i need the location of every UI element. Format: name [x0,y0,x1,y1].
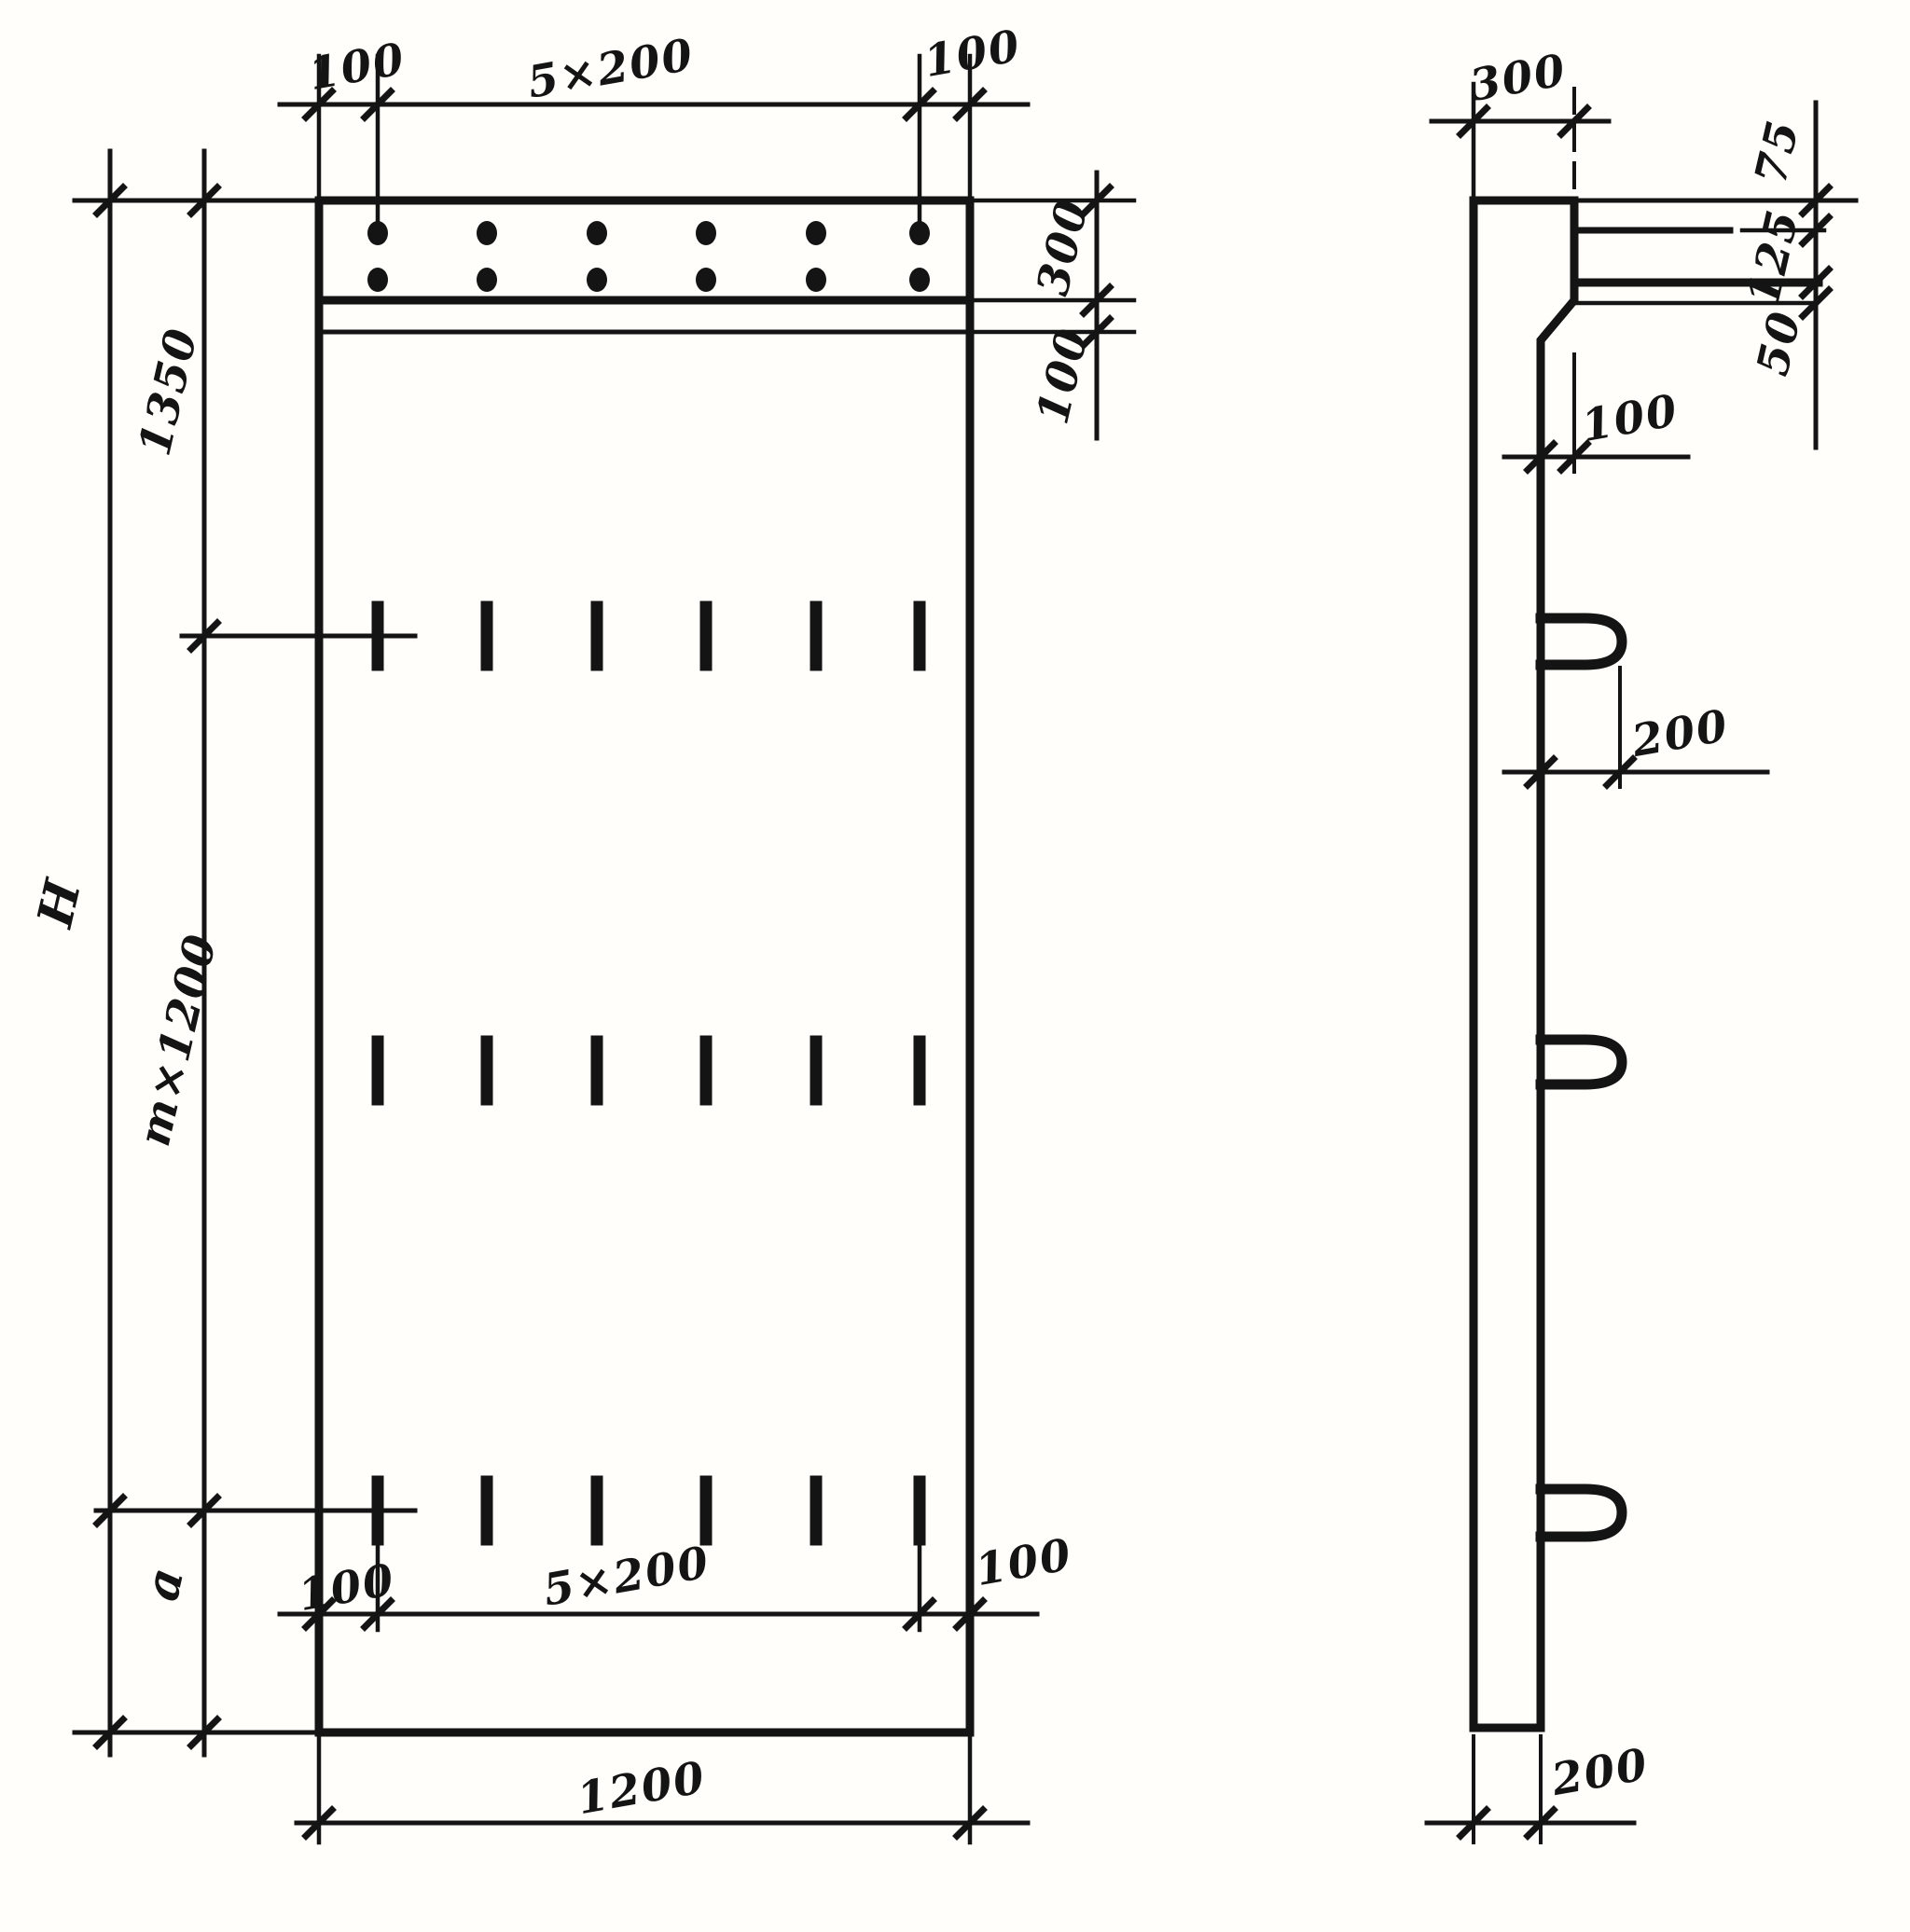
anchor-dot [909,268,930,292]
anchor-dot [367,221,388,245]
anchor-dot [477,221,497,245]
section-outline [1474,200,1574,1728]
anchor-dot [477,268,497,292]
anchor-dot [806,268,826,292]
anchor-dot [367,268,388,292]
panel-outline [319,200,970,1732]
anchor-dot [587,221,607,245]
drawing-canvas: 100 5×200 100 300 100 1350 H m×1200 a 10… [0,0,1910,1932]
lifting-loop [1541,1040,1622,1084]
lifting-loop [1541,618,1622,665]
anchor-dot [909,221,930,245]
anchor-dot [806,221,826,245]
drawing-geometry [0,0,1910,1932]
anchor-dot [696,221,716,245]
anchor-dot [696,268,716,292]
anchor-dot [587,268,607,292]
lifting-loop [1541,1489,1622,1537]
